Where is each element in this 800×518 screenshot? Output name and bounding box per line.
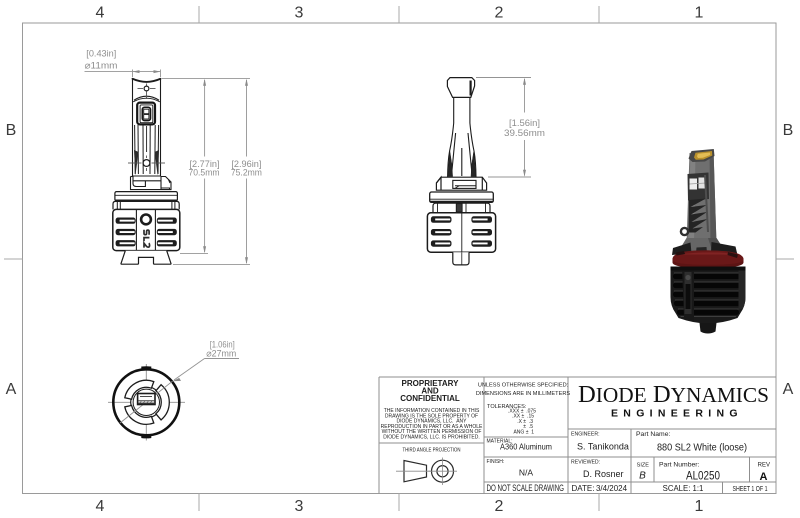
svg-text:1: 1 — [695, 5, 704, 22]
svg-text:3/4/2024: 3/4/2024 — [596, 483, 627, 493]
svg-text:⌀11mm: ⌀11mm — [85, 60, 118, 71]
svg-text:Part Number:: Part Number: — [659, 462, 700, 469]
svg-text:⌀27mm: ⌀27mm — [206, 348, 236, 359]
svg-text:REVIEWED:: REVIEWED: — [571, 460, 600, 466]
svg-text:SIZE: SIZE — [637, 463, 650, 469]
svg-text:REV: REV — [758, 463, 770, 469]
svg-text:70.5mm: 70.5mm — [189, 167, 220, 178]
svg-text:DIMENSIONS ARE IN MILLIMETERS: DIMENSIONS ARE IN MILLIMETERS — [476, 391, 570, 397]
svg-text:ANG ± 1: ANG ± 1 — [513, 430, 534, 436]
svg-text:Part Name:: Part Name: — [636, 431, 670, 438]
svg-text:UNLESS OTHERWISE SPECIFIED:: UNLESS OTHERWISE SPECIFIED: — [478, 382, 569, 388]
svg-text:S. Tanikonda: S. Tanikonda — [577, 442, 629, 452]
svg-text:D. Rosner: D. Rosner — [583, 469, 624, 479]
svg-text:B: B — [6, 122, 17, 139]
svg-text:39.56mm: 39.56mm — [504, 127, 545, 138]
svg-text:B: B — [783, 122, 794, 139]
svg-text:SCALE: 1:1: SCALE: 1:1 — [663, 484, 704, 493]
svg-text:A: A — [783, 381, 794, 398]
svg-text:N/A: N/A — [519, 468, 534, 478]
svg-text:DIODE DYNAMICS: DIODE DYNAMICS — [578, 382, 769, 408]
svg-text:DIODE DYNAMICS, LLC. IS PROHIB: DIODE DYNAMICS, LLC. IS PROHIBITED. — [383, 435, 479, 441]
svg-text:B: B — [639, 471, 646, 482]
svg-text:4: 4 — [96, 498, 105, 515]
svg-text:880 SL2 White (loose): 880 SL2 White (loose) — [657, 442, 747, 454]
svg-text:DATE:: DATE: — [572, 484, 595, 493]
svg-text:DO NOT SCALE DRAWING: DO NOT SCALE DRAWING — [487, 483, 565, 493]
svg-text:FINISH:: FINISH: — [487, 459, 505, 465]
svg-text:CONFIDENTIAL: CONFIDENTIAL — [400, 394, 460, 403]
svg-text:A360 Aluminum: A360 Aluminum — [500, 442, 552, 452]
svg-text:75.2mm: 75.2mm — [231, 167, 262, 178]
svg-text:AL0250: AL0250 — [686, 471, 720, 483]
svg-text:4: 4 — [96, 5, 105, 22]
svg-text:2: 2 — [495, 5, 504, 22]
svg-text:1: 1 — [695, 498, 704, 515]
svg-text:A: A — [6, 381, 17, 398]
svg-text:ENGINEER:: ENGINEER: — [571, 432, 600, 438]
svg-text:A: A — [760, 471, 768, 483]
svg-text:3: 3 — [295, 5, 304, 22]
svg-text:ENGINEERING: ENGINEERING — [611, 408, 738, 420]
svg-text:SHEET 1 OF 1: SHEET 1 OF 1 — [733, 486, 768, 493]
svg-text:THIRD ANGLE PROJECTION: THIRD ANGLE PROJECTION — [403, 448, 461, 454]
svg-text:2: 2 — [495, 498, 504, 515]
svg-text:[0.43in]: [0.43in] — [86, 48, 116, 59]
svg-text:3: 3 — [295, 498, 304, 515]
